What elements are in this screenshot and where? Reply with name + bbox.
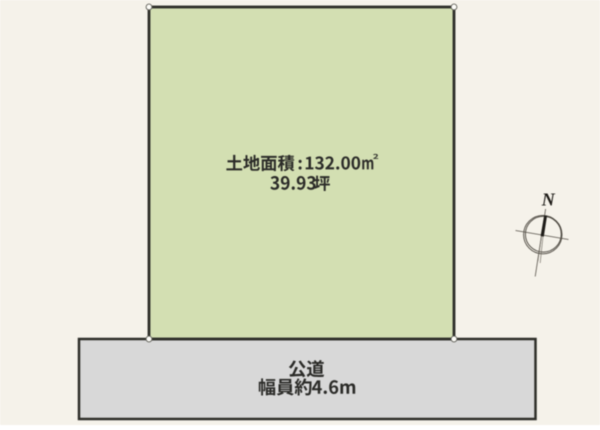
svg-text:N: N [541,190,556,210]
